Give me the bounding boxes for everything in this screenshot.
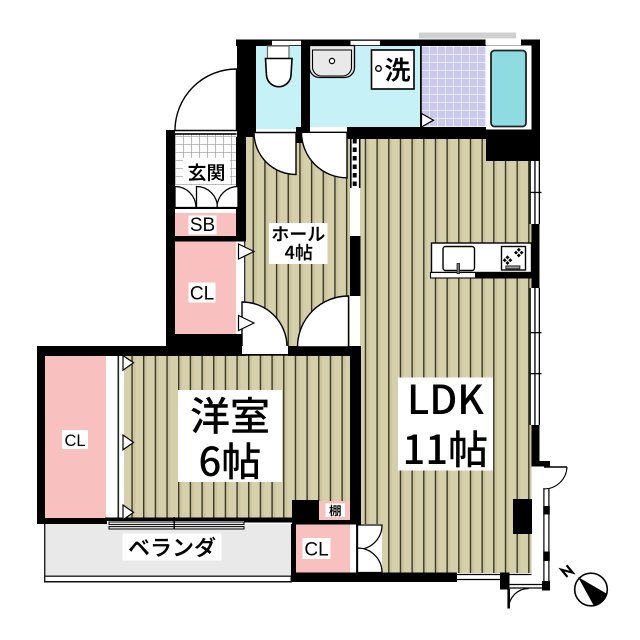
svg-text:CL: CL <box>304 540 328 561</box>
svg-text:CL: CL <box>64 432 85 450</box>
svg-text:CL: CL <box>190 284 214 305</box>
svg-text:SB: SB <box>190 215 215 236</box>
